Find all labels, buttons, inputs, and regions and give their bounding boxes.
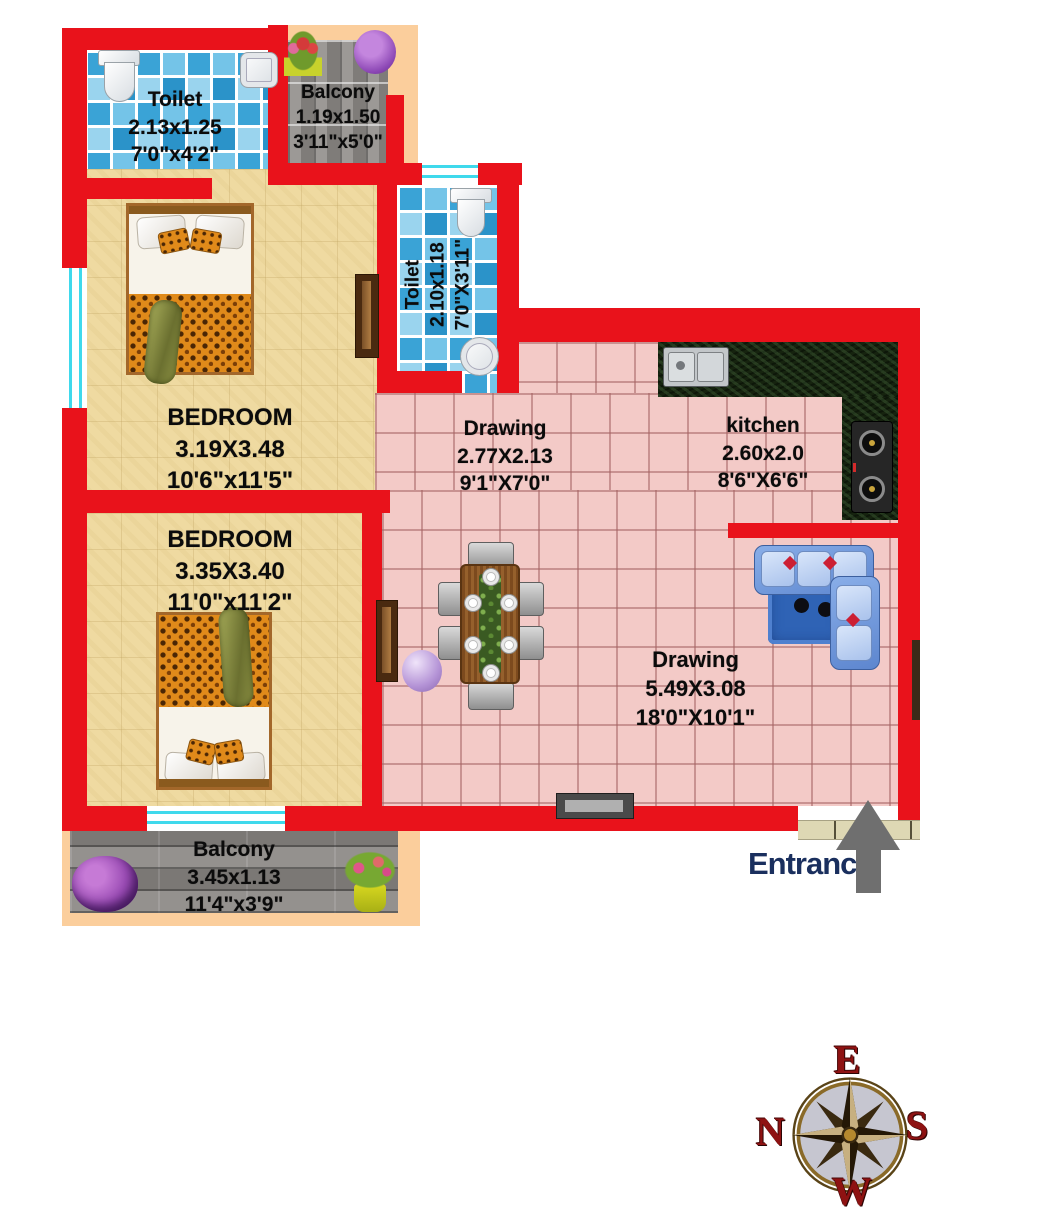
bedroom2-imperial: 11'0"x11'2" (100, 587, 360, 619)
kitchen-metric: 2.60x2.0 (683, 440, 843, 468)
sink-drain (676, 361, 685, 370)
dining-chair-right2 (516, 626, 544, 660)
burner-cap-bottom (869, 486, 875, 492)
sofa-side (830, 576, 880, 670)
bedroom1-label: BEDROOM 3.19X3.48 10'6"x11'5" (100, 402, 360, 497)
bedroom2-window (147, 806, 285, 831)
bedroom2-door-panel (382, 607, 391, 673)
toilet2-window (422, 163, 478, 185)
bed1-headboard (129, 206, 251, 214)
balcony-top-name: Balcony (284, 80, 392, 105)
stove-knob (853, 463, 856, 472)
bedroom2-door (376, 600, 398, 682)
decor-vase (402, 650, 442, 692)
wall-kitchen-bottom (728, 523, 898, 538)
wall-left-lower (62, 513, 87, 808)
gas-stove (851, 421, 893, 513)
floor-plan-page: Toilet 2.13x1.25 7'0"x4'2" Balcony 1.19x… (0, 0, 1053, 1228)
bedroom1-door-panel (362, 281, 371, 349)
drawing-small-label: Drawing 2.77X2.13 9'1"X7'0" (425, 415, 585, 498)
drawing-small-name: Drawing (425, 415, 585, 443)
entrance-arrow-shaft (856, 848, 881, 893)
flower-pot-balcony-top-right (354, 30, 396, 74)
compass-letter-west: W (832, 1168, 872, 1215)
wall-left-upper (62, 28, 87, 268)
flower-pot-balcony-bottom-right (342, 850, 398, 914)
tv-unit (556, 793, 634, 819)
drawing-large-metric: 5.49X3.08 (608, 674, 783, 703)
plate-right1 (500, 594, 518, 612)
wall-toilet2-top-left (268, 163, 422, 185)
toilet1-name: Toilet (90, 86, 260, 114)
wall-toilet2-bottom (377, 371, 462, 393)
toilet1-metric: 2.13x1.25 (90, 114, 260, 142)
dining-chair-bottom (468, 682, 514, 710)
kitchen-name: kitchen (683, 412, 843, 440)
wall-toilet1-bottom (62, 178, 212, 199)
balcony-bottom-imperial: 11'4"x3'9" (134, 891, 334, 919)
bed2-footboard (159, 779, 269, 787)
balcony-bottom-name: Balcony (134, 836, 334, 864)
table-runner (479, 574, 501, 674)
bed1-accent-pillow-left (157, 227, 191, 255)
balcony-bottom-label: Balcony 3.45x1.13 11'4"x3'9" (134, 836, 334, 919)
toilet2-imperial: 7'0"X3'11" (451, 210, 476, 360)
rug-pillow-1 (794, 598, 809, 613)
bed1-accent-pillow-right (189, 228, 222, 255)
toilet2-label: Toilet 2.10x1.18 7'0"X3'11" (400, 210, 475, 360)
flower-bush-balcony-bottom-left (72, 856, 138, 912)
sofa-main-cushion-2 (797, 551, 831, 587)
bedroom2-name: BEDROOM (100, 524, 360, 556)
drawing-large-name: Drawing (608, 645, 783, 674)
entrance-label: Entrance (748, 846, 873, 882)
dining-table (460, 564, 520, 684)
plate-top (482, 568, 500, 586)
drawing-large-label: Drawing 5.49X3.08 18'0"X10'1" (608, 645, 783, 732)
toilet1-imperial: 7'0"x4'2" (90, 141, 260, 169)
kitchen-label: kitchen 2.60x2.0 8'6"X6'6" (683, 412, 843, 495)
balcony-bottom-metric: 3.45x1.13 (134, 864, 334, 892)
kitchen-sink (663, 347, 729, 387)
bedroom1-metric: 3.19X3.48 (100, 434, 360, 466)
drawing-small-imperial: 9'1"X7'0" (425, 470, 585, 498)
wall-bottom-main (285, 806, 798, 831)
plate-left1 (464, 594, 482, 612)
wall-drawing-top (497, 308, 920, 342)
drawing-large-imperial: 18'0"X10'1" (608, 703, 783, 732)
wall-toilet2-left (377, 163, 397, 390)
right-wall-marker (912, 640, 920, 720)
sink-basin-right (697, 352, 724, 382)
flower-pot-bloom (342, 850, 398, 890)
balcony-top-imperial: 3'11"x5'0" (284, 130, 392, 155)
entrance-arrow-head (836, 800, 900, 850)
wall-right (898, 308, 920, 822)
bedroom2-bed (156, 612, 272, 790)
compass-letter-east: E (834, 1036, 861, 1083)
balcony-top-label: Balcony 1.19x1.50 3'11"x5'0" (284, 80, 392, 155)
bedroom2-metric: 3.35X3.40 (100, 556, 360, 588)
balcony-top-metric: 1.19x1.50 (284, 105, 392, 130)
bedroom1-name: BEDROOM (100, 402, 360, 434)
plate-right2 (500, 636, 518, 654)
dining-chair-right1 (516, 582, 544, 616)
wall-toilet2-right (497, 163, 519, 393)
toilet2-metric: 2.10x1.18 (425, 210, 450, 360)
drawing-floor-upper (517, 342, 658, 393)
compass-letter-south: S (906, 1102, 928, 1149)
bedroom1-window (62, 268, 87, 408)
burner-cap-top (869, 440, 875, 446)
bedroom2-label: BEDROOM 3.35X3.40 11'0"x11'2" (100, 524, 360, 619)
toilet2-name: Toilet (400, 210, 425, 360)
compass-letter-north: N (756, 1108, 785, 1155)
compass: E S W N (748, 1040, 948, 1228)
plate-bottom (482, 664, 500, 682)
bedroom1-toilet2-door (355, 274, 379, 358)
wall-top (62, 28, 288, 50)
toilet1-washbasin (240, 52, 278, 88)
bedroom1-bed (126, 203, 254, 375)
flower-pot-balcony-top-left (284, 30, 322, 76)
bedroom1-imperial: 10'6"x11'5" (100, 465, 360, 497)
toilet1-label: Toilet 2.13x1.25 7'0"x4'2" (90, 86, 260, 169)
drawing-small-metric: 2.77X2.13 (425, 443, 585, 471)
kitchen-imperial: 8'6"X6'6" (683, 467, 843, 495)
sofa-side-cushion-2 (836, 625, 872, 661)
wall-bottom-left (62, 806, 147, 831)
plate-left2 (464, 636, 482, 654)
tv-screen (565, 800, 623, 812)
